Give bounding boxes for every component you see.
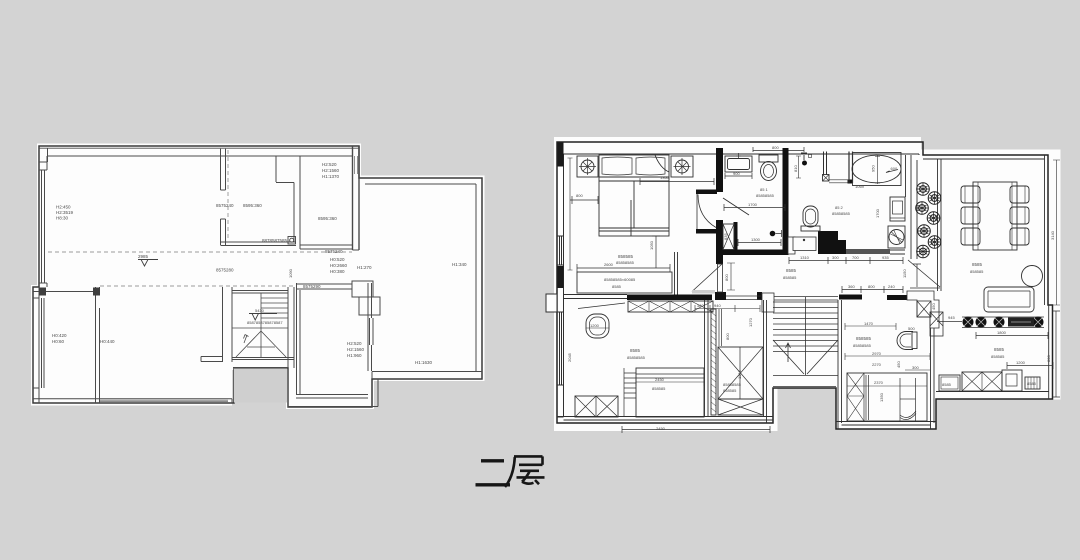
svg-text:H2:1560: H2:1560 xyxy=(322,168,340,173)
svg-text:1200: 1200 xyxy=(1016,360,1026,365)
svg-text:85858585: 85858585 xyxy=(723,382,742,387)
svg-text:1350: 1350 xyxy=(879,392,884,402)
svg-text:8585: 8585 xyxy=(994,347,1005,352)
svg-text:8595:360: 8595:360 xyxy=(243,203,262,208)
svg-text:950: 950 xyxy=(871,165,876,172)
svg-text:600: 600 xyxy=(891,166,898,171)
svg-text:85 2: 85 2 xyxy=(835,205,844,210)
svg-text:858585: 858585 xyxy=(618,254,634,259)
svg-text:858585: 858585 xyxy=(723,388,737,393)
svg-text:858585: 858585 xyxy=(991,354,1005,359)
svg-text:450: 450 xyxy=(931,303,936,310)
svg-text:1069: 1069 xyxy=(855,184,865,189)
svg-text:H2:450: H2:450 xyxy=(56,205,71,210)
svg-text:2600: 2600 xyxy=(604,262,614,267)
svg-text:858585: 858585 xyxy=(856,336,872,341)
svg-text:858585: 858585 xyxy=(652,386,666,391)
svg-text:2970: 2970 xyxy=(872,351,882,356)
svg-text:H2:3519: H2:3519 xyxy=(56,210,74,215)
svg-text:H0:420: H0:420 xyxy=(52,333,67,338)
svg-text:300: 300 xyxy=(832,255,839,260)
svg-text:900: 900 xyxy=(733,171,740,176)
svg-text:2985: 2985 xyxy=(138,254,149,259)
svg-text:1700: 1700 xyxy=(875,208,880,218)
svg-text:800: 800 xyxy=(725,333,730,340)
svg-text:85858585: 85858585 xyxy=(756,193,775,198)
svg-text:800: 800 xyxy=(576,193,583,198)
svg-text:8878587585: 8878587585 xyxy=(262,238,288,243)
svg-text:H0:60: H0:60 xyxy=(52,339,65,344)
svg-text:700: 700 xyxy=(852,255,859,260)
svg-text:935: 935 xyxy=(882,255,889,260)
svg-text:85858585: 85858585 xyxy=(853,343,872,348)
svg-text:8585: 8585 xyxy=(612,284,622,289)
svg-text:858585: 858585 xyxy=(783,275,797,280)
svg-text:8585: 8585 xyxy=(630,348,641,353)
svg-text:2270: 2270 xyxy=(872,362,882,367)
svg-text:1300: 1300 xyxy=(751,237,761,242)
svg-text:H1:340: H1:340 xyxy=(452,262,467,267)
svg-text:8585: 8585 xyxy=(1027,381,1037,386)
svg-text:8575240: 8575240 xyxy=(325,249,343,254)
svg-text:H0:520: H0:520 xyxy=(330,257,345,262)
svg-text:H0:440: H0:440 xyxy=(100,339,115,344)
svg-text:H1:1630: H1:1630 xyxy=(415,360,433,365)
svg-text:H1:270: H1:270 xyxy=(357,265,372,270)
svg-text:8575240: 8575240 xyxy=(216,203,234,208)
svg-text:8575280: 8575280 xyxy=(216,268,234,273)
svg-text:5430: 5430 xyxy=(255,308,265,313)
svg-text:1200: 1200 xyxy=(590,323,600,328)
svg-text:945: 945 xyxy=(948,315,955,320)
svg-text:1360: 1360 xyxy=(660,175,670,180)
svg-text:H8:30: H8:30 xyxy=(56,216,69,221)
svg-text:800: 800 xyxy=(724,274,729,281)
svg-text:85858585: 85858585 xyxy=(832,211,851,216)
svg-text:1470: 1470 xyxy=(864,321,874,326)
svg-text:8587858785878587: 8587858785878587 xyxy=(247,320,283,325)
svg-text:8595:360: 8595:360 xyxy=(318,216,337,221)
svg-text:85858585: 85858585 xyxy=(616,260,635,265)
svg-text:H2:1560: H2:1560 xyxy=(347,347,365,352)
svg-text:800: 800 xyxy=(772,145,779,150)
svg-text:800: 800 xyxy=(868,284,875,289)
svg-text:1700: 1700 xyxy=(748,202,758,207)
svg-text:H1:960: H1:960 xyxy=(347,353,362,358)
svg-text:8585: 8585 xyxy=(972,262,983,267)
svg-text:858585: 858585 xyxy=(970,269,984,274)
svg-text:H0:380: H0:380 xyxy=(330,269,345,274)
svg-text:2370: 2370 xyxy=(874,380,884,385)
svg-text:H1:1370: H1:1370 xyxy=(322,174,340,179)
svg-text:1090: 1090 xyxy=(288,268,293,278)
svg-text:240: 240 xyxy=(888,284,895,289)
svg-text:360: 360 xyxy=(848,284,855,289)
svg-text:H0:2660: H0:2660 xyxy=(330,263,348,268)
svg-text:360: 360 xyxy=(697,303,704,308)
svg-text:8575290: 8575290 xyxy=(303,284,321,289)
svg-text:2450: 2450 xyxy=(656,426,666,431)
svg-text:1310: 1310 xyxy=(800,255,810,260)
svg-text:940: 940 xyxy=(714,303,721,308)
svg-text:8585: 8585 xyxy=(786,268,797,273)
svg-text:3140: 3140 xyxy=(1050,230,1055,240)
svg-text:85858585: 85858585 xyxy=(627,355,646,360)
svg-text:85 1: 85 1 xyxy=(760,187,769,192)
svg-text:500: 500 xyxy=(908,326,915,331)
svg-text:810: 810 xyxy=(793,165,798,172)
svg-text:835: 835 xyxy=(723,233,728,240)
svg-text:8585: 8585 xyxy=(942,382,952,387)
svg-text:H2:520: H2:520 xyxy=(322,162,337,167)
svg-text:1150: 1150 xyxy=(902,269,907,278)
svg-text:300: 300 xyxy=(912,365,919,370)
svg-text:800: 800 xyxy=(1046,355,1051,362)
svg-text:1800: 1800 xyxy=(997,330,1007,335)
svg-text:2450: 2450 xyxy=(655,377,665,382)
svg-text:85858585×60085: 85858585×60085 xyxy=(604,277,636,282)
svg-text:2045: 2045 xyxy=(567,352,572,362)
svg-text:1270: 1270 xyxy=(748,317,753,327)
svg-text:1050: 1050 xyxy=(649,240,654,250)
svg-text:1315: 1315 xyxy=(737,369,742,379)
svg-text:H2:520: H2:520 xyxy=(347,341,362,346)
svg-text:450: 450 xyxy=(896,361,901,368)
